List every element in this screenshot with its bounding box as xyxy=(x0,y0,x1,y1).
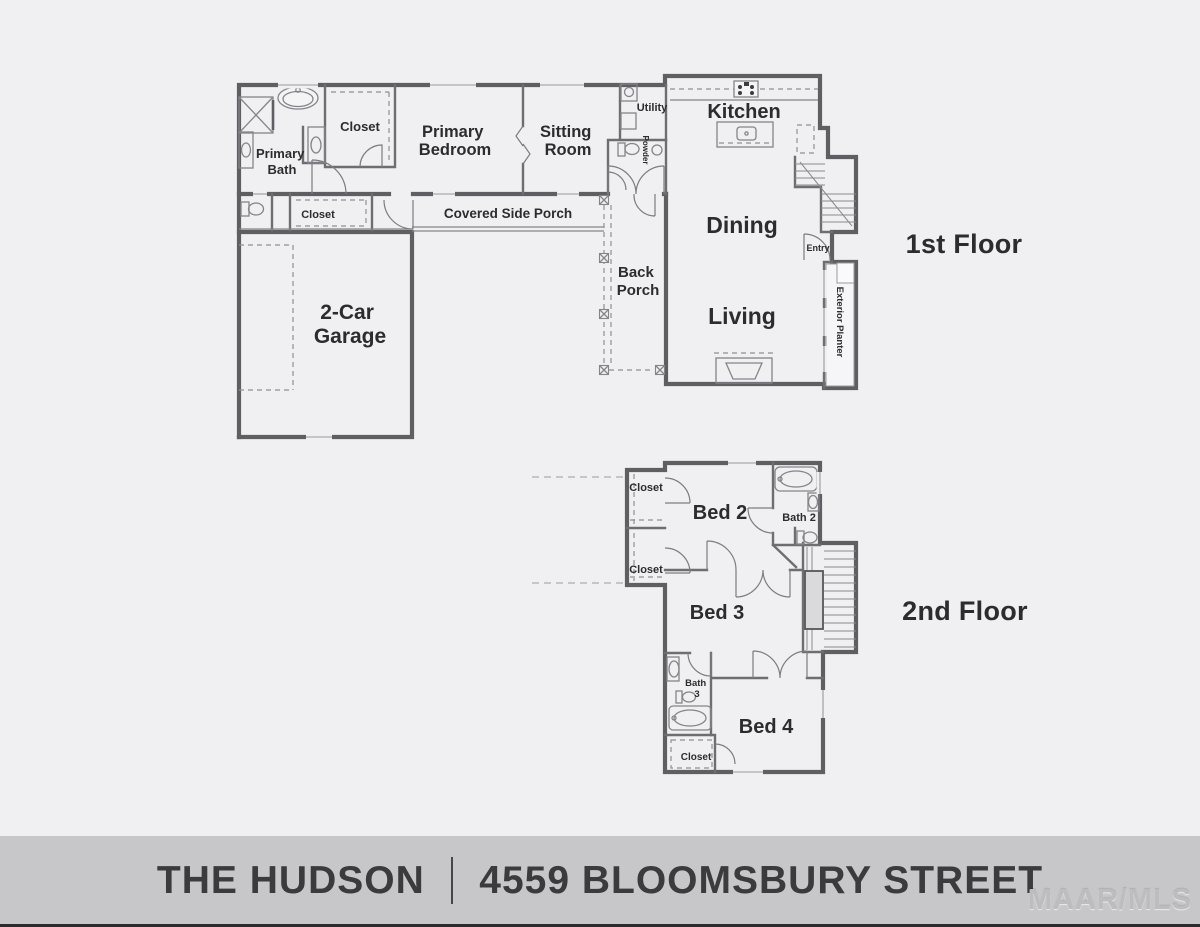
room-label-powder: Powder xyxy=(641,136,650,165)
floor-title-1: 1st Floor xyxy=(906,229,1023,259)
bathtub-icon xyxy=(278,87,318,109)
toilet-icon-3 xyxy=(676,691,696,703)
room-label-garage: 2-Car Garage xyxy=(314,301,386,348)
room-label-primary-bedroom: Primary Bedroom xyxy=(419,123,491,159)
plan-name: THE HUDSON xyxy=(157,859,425,903)
planter-window xyxy=(837,263,854,283)
room-label-primary-bath: Primary Bath xyxy=(256,146,308,177)
room-label-entry: Entry xyxy=(806,243,829,253)
bathtub-icon-3 xyxy=(669,706,711,730)
garage-storage-outline xyxy=(239,245,293,390)
room-label-closet-mid: Closet xyxy=(629,564,663,576)
room-label-sitting-room: Sitting Room xyxy=(540,123,596,159)
room-label-bed2: Bed 2 xyxy=(693,502,747,524)
room-label-covered-side-porch: Covered Side Porch xyxy=(444,206,572,221)
mls-watermark: MAAR/MLS xyxy=(1028,884,1192,917)
room-label-hall-closet: Closet xyxy=(301,209,335,221)
first-floor-plan: Primary Bath Closet Primary Bedroom Sitt… xyxy=(239,76,1023,441)
vanity-sink-icon-2 xyxy=(808,493,819,511)
room-label-bath3: Bath 3 xyxy=(685,678,709,700)
fireplace-icon xyxy=(714,353,774,383)
room-label-bed3: Bed 3 xyxy=(690,602,744,624)
banner-title: THE HUDSON 4559 BLOOMSBURY STREET xyxy=(157,857,1043,904)
street-address: 4559 BLOOMSBURY STREET xyxy=(479,859,1043,903)
room-label-utility: Utility xyxy=(637,102,668,114)
stove-icon xyxy=(734,81,758,97)
washer-dryer-icon xyxy=(621,84,637,129)
shower-icon xyxy=(239,97,273,133)
toilet-icon xyxy=(241,202,264,216)
second-floor-plan: Closet Closet Bed 2 Bath 2 Bed 3 Bath 3 … xyxy=(532,460,1028,776)
room-label-closet-top: Closet xyxy=(629,482,663,494)
room-label-back-porch: Back Porch xyxy=(617,264,660,299)
closet-shelf-lines xyxy=(296,92,389,226)
bathtub-icon-2 xyxy=(775,467,817,491)
kitchen-island xyxy=(717,122,773,147)
room-label-living: Living xyxy=(708,303,776,329)
title-divider xyxy=(451,857,454,904)
room-label-closet: Closet xyxy=(340,119,380,134)
room-label-closet-bottom: Closet xyxy=(681,752,712,763)
stairs-icon-2 xyxy=(805,547,856,650)
stairs-icon xyxy=(795,162,856,226)
hall-diagonal-wall xyxy=(773,545,796,567)
floor-title-2: 2nd Floor xyxy=(902,596,1028,626)
roof-line xyxy=(532,477,626,583)
floor-plan-sheet: Primary Bath Closet Primary Bedroom Sitt… xyxy=(0,0,1200,927)
pantry-cabinet xyxy=(797,125,814,153)
room-label-bed4: Bed 4 xyxy=(739,716,794,738)
floor-plans-canvas: Primary Bath Closet Primary Bedroom Sitt… xyxy=(0,0,1200,836)
porch-floor-edge xyxy=(412,227,604,231)
room-label-exterior-planter: Exterior Planter xyxy=(834,287,845,358)
vanity-sink-icon-3 xyxy=(667,657,679,681)
room-label-dining: Dining xyxy=(706,212,778,238)
footer-banner: THE HUDSON 4559 BLOOMSBURY STREET MAAR/M… xyxy=(0,836,1200,925)
toilet-icon-2 xyxy=(797,531,817,544)
room-label-bath2: Bath 2 xyxy=(782,512,816,524)
powder-toilet-icon xyxy=(618,143,662,156)
room-label-kitchen: Kitchen xyxy=(707,101,780,123)
